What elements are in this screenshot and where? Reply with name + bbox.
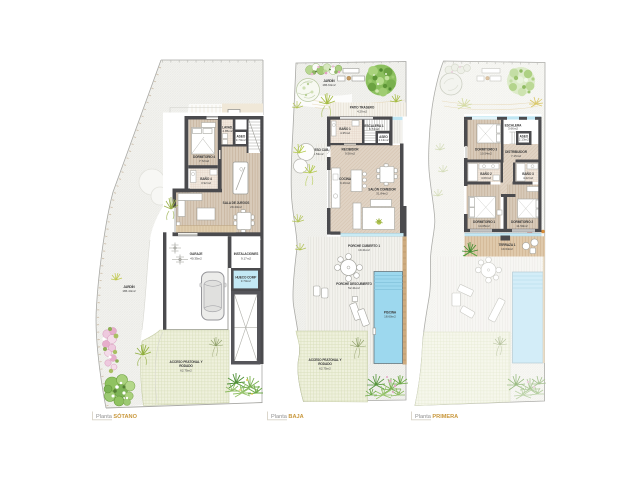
svg-text:52.41m2: 52.41m2	[348, 286, 360, 290]
svg-text:10.54m2: 10.54m2	[480, 152, 492, 156]
svg-text:RODADO: RODADO	[179, 364, 193, 368]
svg-text:18.60m2: 18.60m2	[384, 315, 396, 319]
svg-text:19.41m2: 19.41m2	[358, 248, 370, 252]
svg-text:14.05m2: 14.05m2	[478, 224, 490, 228]
svg-text:31.84m2: 31.84m2	[376, 192, 388, 196]
svg-text:9.56m2: 9.56m2	[345, 152, 355, 156]
svg-text:62.75m2: 62.75m2	[180, 369, 192, 373]
svg-text:7.72m2: 7.72m2	[199, 159, 209, 163]
svg-text:9.19m2: 9.19m2	[340, 181, 350, 185]
svg-text:4.22m2: 4.22m2	[523, 176, 533, 180]
svg-text:4.09m2: 4.09m2	[481, 176, 491, 180]
svg-text:9.17m2: 9.17m2	[241, 257, 251, 261]
svg-text:4.29m2: 4.29m2	[357, 110, 367, 114]
svg-text:4.35m2: 4.35m2	[340, 131, 350, 135]
svg-text:RODADO: RODADO	[318, 362, 332, 366]
svg-text:Planta SÓTANO: Planta SÓTANO	[96, 412, 138, 420]
svg-text:6.74m2: 6.74m2	[369, 127, 379, 131]
svg-text:40.35m2: 40.35m2	[190, 257, 202, 261]
svg-text:19.64m2: 19.64m2	[501, 247, 513, 251]
svg-text:2.13m2: 2.13m2	[519, 138, 529, 142]
svg-text:2.85m2: 2.85m2	[222, 129, 232, 133]
svg-text:29.43m2: 29.43m2	[230, 205, 242, 209]
svg-text:7.15m2: 7.15m2	[511, 154, 521, 158]
svg-text:3.66m2: 3.66m2	[508, 127, 518, 131]
svg-text:INSTALACIONES: INSTALACIONES	[234, 252, 259, 256]
svg-text:2.13m2: 2.13m2	[378, 138, 388, 142]
svg-text:Planta PRIMERA: Planta PRIMERA	[415, 414, 458, 420]
svg-text:3.70m2: 3.70m2	[236, 138, 246, 142]
svg-text:Planta BAJA: Planta BAJA	[271, 414, 304, 420]
svg-text:11.50m2: 11.50m2	[516, 224, 528, 228]
svg-text:186.64m2: 186.64m2	[322, 83, 336, 87]
svg-text:GARAJE: GARAJE	[190, 252, 203, 256]
svg-text:3.70m2: 3.70m2	[241, 279, 251, 283]
svg-text:3.53m2: 3.53m2	[313, 152, 323, 156]
svg-text:3.92m2: 3.92m2	[201, 181, 211, 185]
svg-text:186.44m2: 186.44m2	[122, 289, 136, 293]
svg-text:62.75m2: 62.75m2	[319, 367, 331, 371]
